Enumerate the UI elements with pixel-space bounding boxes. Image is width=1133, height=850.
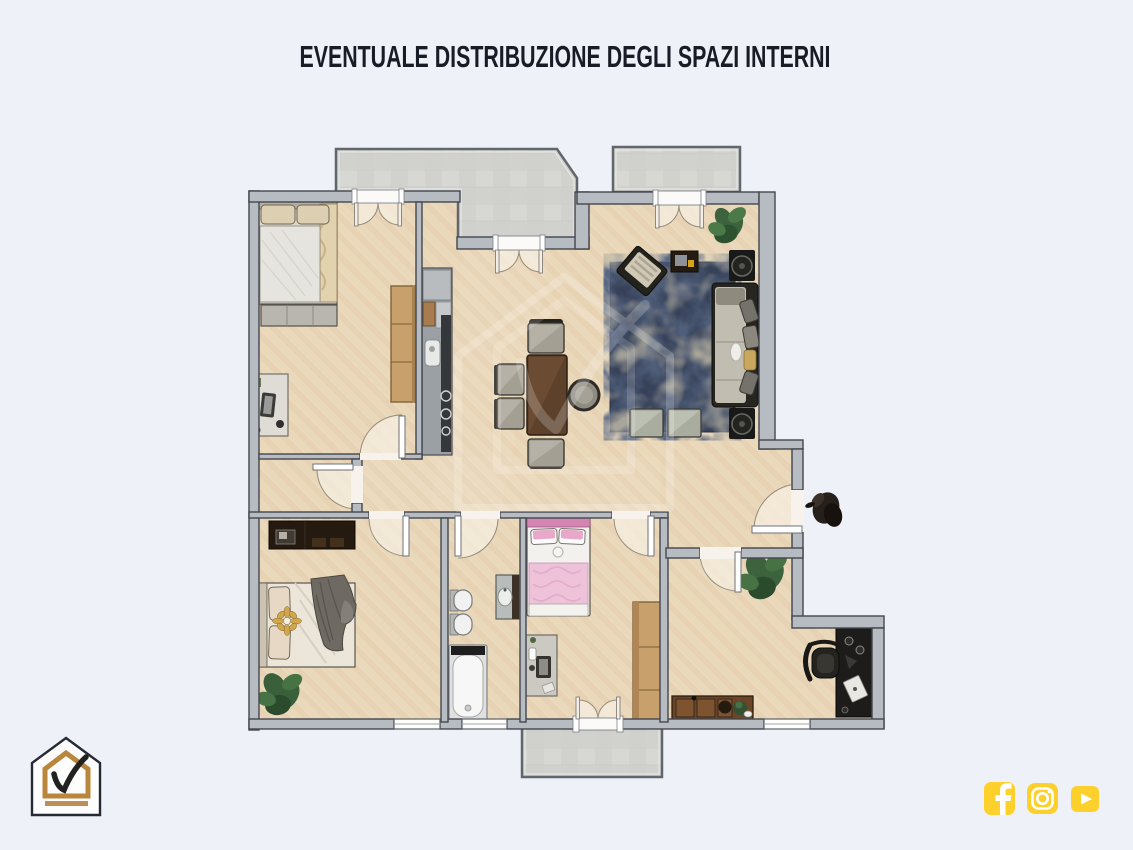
svg-text:EVENTUALE DISTRIBUZIONE DEGLI: EVENTUALE DISTRIBUZIONE DEGLI SPAZI INTE… [300, 39, 831, 74]
